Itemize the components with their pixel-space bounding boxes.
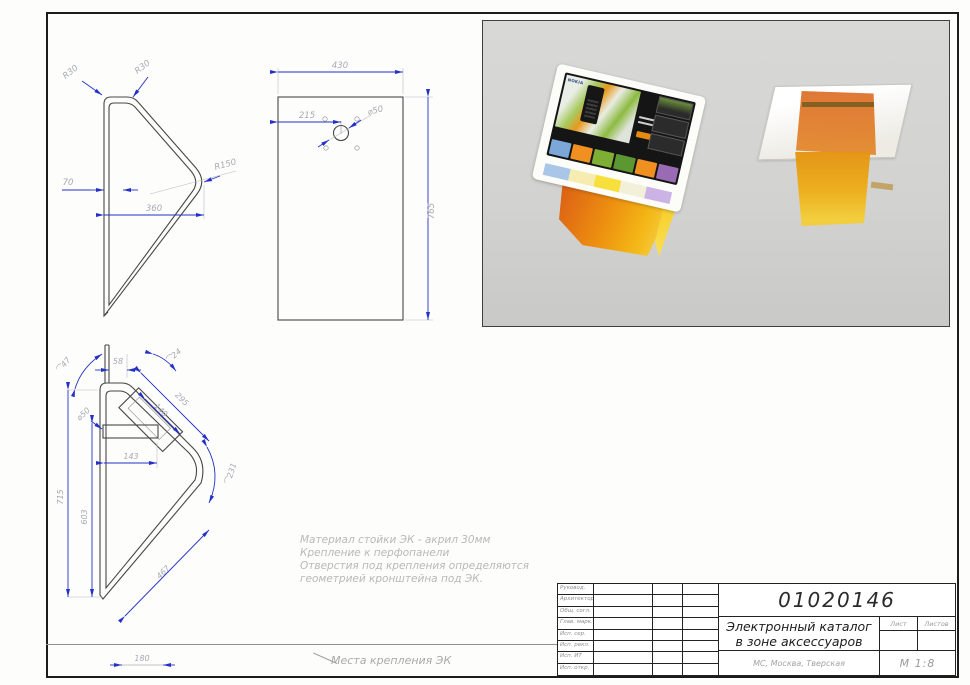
dim-r150: R150: [213, 157, 237, 172]
signoff-row: Глав. марк.: [558, 618, 718, 629]
signoff-label: Общ. согл.: [558, 607, 594, 617]
note-line: Крепление к перфопанели: [300, 547, 540, 560]
bezel-stripe: [568, 169, 596, 187]
dim-765: 765: [427, 203, 437, 219]
dim-arc24: ⌒24: [164, 347, 184, 366]
category-tile: [634, 159, 657, 178]
screen-side-tiles: [647, 96, 693, 157]
acrylic-bracket-upper: [796, 91, 876, 155]
dim-180: 180: [134, 654, 149, 663]
signoff-label: Исп. ИТ: [558, 652, 594, 662]
dim-arc231: ⌒231: [223, 462, 239, 487]
dim-70: 70: [63, 178, 74, 188]
dim-d50: ⌀50: [75, 406, 92, 423]
title-block-right: 01020146 Электронный каталог в зоне аксе…: [719, 584, 955, 675]
title-block-middle: Электронный каталог в зоне аксессуаров Л…: [719, 617, 955, 651]
dim-arc47: ⌒47: [54, 355, 73, 375]
side-profile-view: R30 R30 R150 70 360: [50, 55, 260, 330]
drawing-sheet: R30 R30 R150 70 360 430 765: [0, 0, 970, 685]
dim-360: 360: [146, 204, 162, 214]
signoff-row: Общ. согл.: [558, 607, 718, 618]
bracket-mount-tab: [871, 182, 894, 191]
scale-label: М 1:8: [880, 651, 955, 675]
bezel-stripe: [619, 181, 647, 199]
profile-outer: [100, 383, 203, 599]
dim-r30-right: R30: [133, 58, 152, 76]
signoff-row: Исп. рекл.: [558, 641, 718, 652]
dim-715: 715: [56, 489, 65, 504]
drawing-title: Электронный каталог в зоне аксессуаров: [719, 617, 880, 650]
bracket-plate: [103, 425, 158, 438]
signoff-label: Исп. сер.: [558, 630, 594, 640]
dim-r30-left: R30: [61, 63, 80, 81]
perfo-panel-edge-line: [46, 644, 557, 645]
category-tile: [549, 139, 572, 158]
note-line: геометрией кронштейна под ЭК.: [300, 573, 540, 586]
screen-hero-image: NOKIA: [555, 75, 641, 144]
sheet-cell: [880, 631, 918, 650]
bezel-stripe: [644, 186, 672, 204]
category-tile: [656, 164, 679, 183]
bracket-detail-view: ⌒47 58 ⌒24 295 140 ⌀50 143 ⌒231 715 603 …: [45, 342, 305, 682]
sheet-col-label: Лист: [880, 617, 918, 630]
signoff-label: Исп. рекл.: [558, 641, 594, 651]
dim-295: 295: [173, 391, 190, 408]
dim-143: 143: [123, 452, 138, 461]
sheets-cell: [918, 631, 955, 650]
sheet-cells: [880, 631, 955, 650]
category-tile: [613, 154, 636, 173]
category-tile: [592, 149, 615, 168]
signoff-row: Исп. ИТ: [558, 652, 718, 663]
title-block-bottom: МС, Москва, Тверская М 1:8: [719, 651, 955, 675]
dim-58: 58: [113, 357, 123, 366]
category-tile: [570, 144, 593, 163]
dim-215: 215: [299, 111, 315, 121]
front-view: 430 765 215 ⌀50: [265, 58, 440, 330]
note-line: Материал стойки ЭК - акрил 30мм: [300, 534, 540, 547]
sheets-col-label: Листов: [918, 617, 955, 630]
acrylic-bracket-lower: [792, 152, 872, 226]
dim-467: 467: [155, 563, 173, 581]
drawing-title-line2: в зоне аксессуаров: [736, 634, 863, 649]
signoff-table: Руковод. Архитектор Общ. согл. Глав. мар…: [558, 584, 719, 675]
catalog-display-front: NOKIA: [532, 63, 707, 212]
mounting-points-callout: Места крепления ЭК: [331, 654, 451, 667]
phone-image: [580, 84, 605, 124]
material-notes: Материал стойки ЭК - акрил 30мм Креплени…: [300, 534, 540, 586]
signoff-label: Исп. откр.: [558, 664, 594, 675]
drawing-title-line1: Электронный каталог: [726, 619, 872, 634]
dim-603: 603: [80, 509, 89, 524]
render-preview-panel: NOKIA: [482, 20, 950, 327]
front-panel-outline: [278, 97, 403, 320]
dim-d50: ⌀50: [366, 104, 384, 118]
signoff-label: Архитектор: [558, 595, 594, 605]
brand-label: NOKIA: [567, 77, 584, 85]
signoff-row: Архитектор: [558, 595, 718, 606]
sheet-header: Лист Листов: [880, 617, 955, 631]
document-number: 01020146: [719, 584, 955, 617]
note-line: Отверстия под крепления определяются: [300, 560, 540, 573]
signoff-label: Руковод.: [558, 584, 594, 594]
bracket-shadow-band: [802, 102, 874, 107]
signoff-row: Исп. сер.: [558, 630, 718, 641]
signoff-row: Исп. откр.: [558, 664, 718, 675]
signoff-label: Глав. марк.: [558, 618, 594, 628]
signoff-row: Руковод.: [558, 584, 718, 595]
bezel-stripe: [543, 163, 571, 181]
location-label: МС, Москва, Тверская: [719, 651, 880, 675]
dim-430: 430: [332, 61, 348, 71]
bezel-stripe: [593, 175, 621, 193]
bracket-outer: [119, 388, 183, 452]
title-block: Руковод. Архитектор Общ. согл. Глав. мар…: [557, 583, 956, 676]
panel-stub: [105, 345, 109, 383]
profile-inner: [106, 391, 197, 588]
